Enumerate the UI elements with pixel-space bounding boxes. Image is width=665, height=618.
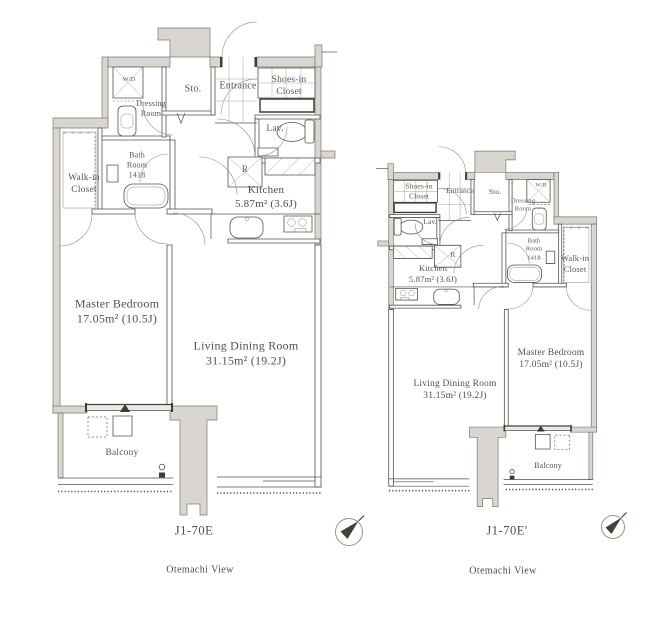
unit-caption: J1-70E (175, 524, 213, 539)
room-label-storage: Sto. (185, 84, 202, 97)
room-label-living-dining-room: Living Dining Room 31.15m² (19.2J) (413, 378, 496, 402)
room-label-master-bedroom: Master Bedroom 17.05m² (10.5J) (518, 347, 585, 371)
room-label-living-dining-room: Living Dining Room 31.15m² (19.2J) (194, 339, 299, 370)
compass-icon (602, 513, 627, 539)
floorplan-sheet: W/D Dressing Room Sto. Entrance Shoes-in… (0, 0, 665, 618)
room-label-balcony: Balcony (534, 461, 562, 471)
room-label-shoes-in-closet: Shoes-in Closet (405, 181, 432, 200)
room-label-bath-room: Bath Room 1418 (127, 151, 147, 182)
room-label-entrance: Entrance (446, 186, 474, 196)
view-caption: Otemachi View (469, 566, 536, 577)
room-label-walk-in-closet: Walk-in Closet (68, 172, 100, 196)
room-label-bath-room: Bath Room 1418 (526, 238, 542, 263)
room-label-lavatory: Lav. (423, 217, 437, 227)
room-label-entrance: Entrance (219, 81, 256, 94)
room-label-walk-in-closet: Walk-in Closet (561, 253, 589, 275)
floor-plan-right (376, 147, 596, 507)
compass-icon (336, 516, 365, 546)
room-label-storage: Sto. (489, 187, 501, 197)
room-label-balcony: Balcony (106, 447, 139, 459)
room-label-lavatory: Lav. (266, 123, 283, 135)
room-label-kitchen: Kitchen 5.87m² (3.6J) (409, 263, 457, 285)
room-label-washer-dryer: W/D (535, 182, 546, 189)
unit-caption: J1-70E' (486, 524, 527, 539)
room-label-dressing-room: Dressing Room (511, 198, 535, 215)
room-label-refrigerator: R (450, 250, 455, 260)
room-label-master-bedroom: Master Bedroom 17.05m² (10.5J) (75, 297, 159, 328)
room-label-washer-dryer: W/D (122, 76, 135, 84)
room-label-kitchen: Kitchen 5.87m² (3.6J) (235, 183, 297, 211)
room-label-dressing-room: Dressing Room (136, 99, 166, 119)
room-label-shoes-in-closet: Shoes-in Closet (272, 74, 307, 98)
view-caption: Otemachi View (166, 565, 233, 576)
room-label-refrigerator: R (242, 164, 248, 176)
